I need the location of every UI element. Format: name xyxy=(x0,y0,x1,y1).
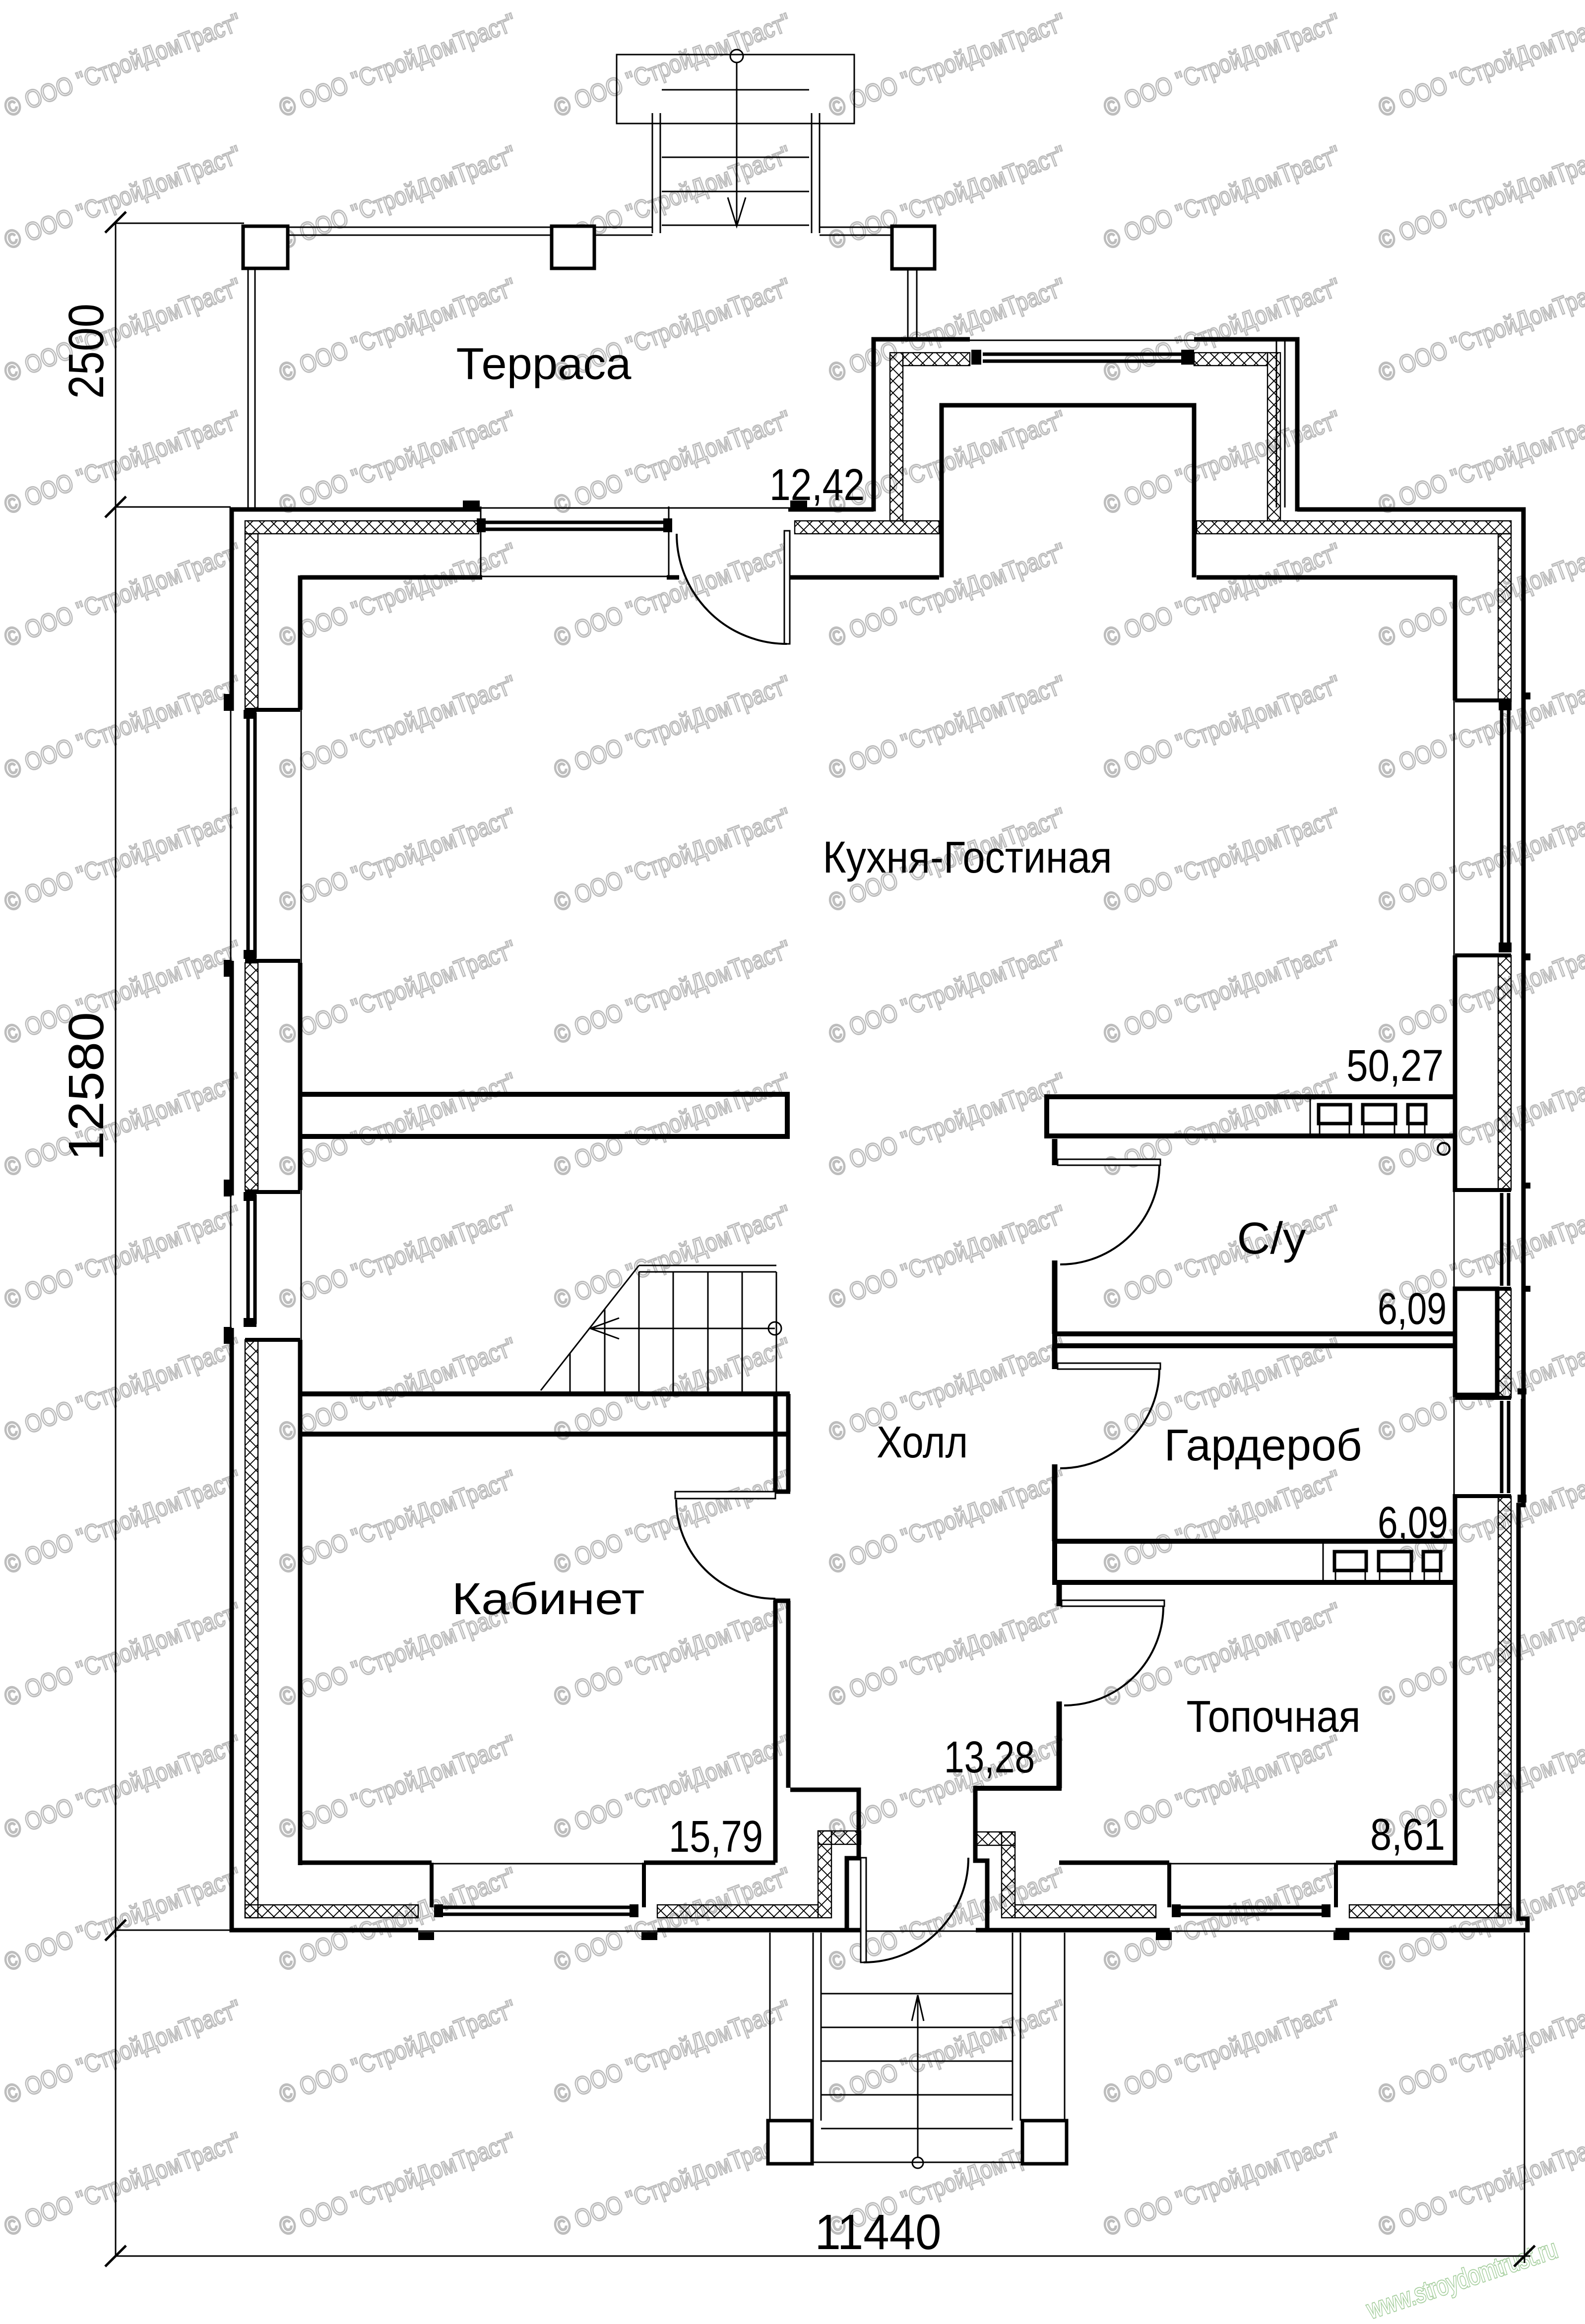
svg-text:Топочная: Топочная xyxy=(1187,1692,1361,1742)
svg-text:12,42: 12,42 xyxy=(769,460,865,510)
svg-text:13,28: 13,28 xyxy=(944,1733,1035,1782)
svg-text:6,09: 6,09 xyxy=(1378,1498,1448,1548)
svg-text:2500: 2500 xyxy=(59,304,114,399)
svg-text:Холл: Холл xyxy=(877,1418,968,1467)
svg-text:11440: 11440 xyxy=(815,2204,942,2260)
svg-text:Кабинет: Кабинет xyxy=(452,1574,645,1624)
svg-text:8,61: 8,61 xyxy=(1370,1810,1445,1860)
svg-text:Гардероб: Гардероб xyxy=(1164,1421,1362,1470)
svg-text:12580: 12580 xyxy=(59,1012,114,1161)
svg-text:Кухня-Гостиная: Кухня-Гостиная xyxy=(823,833,1112,882)
svg-text:15,79: 15,79 xyxy=(669,1812,763,1862)
svg-text:6,09: 6,09 xyxy=(1378,1284,1447,1334)
svg-text:50,27: 50,27 xyxy=(1346,1041,1444,1091)
svg-text:С/у: С/у xyxy=(1237,1214,1306,1263)
svg-text:Терраса: Терраса xyxy=(456,339,632,389)
